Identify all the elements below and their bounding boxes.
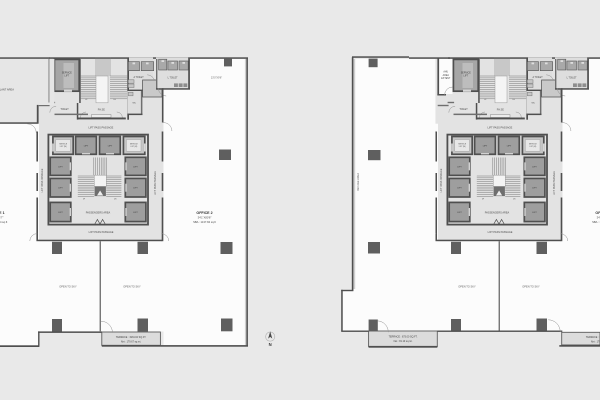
svg-text:EXTENT: EXTENT (441, 78, 451, 80)
svg-text:Net : 179.67 sq.mt.: Net : 179.67 sq.mt. (121, 340, 142, 343)
svg-text:TERRACE : 873.00 SQ.FT.: TERRACE : 873.00 SQ.FT. (389, 336, 418, 339)
svg-text:REFUGE AREA: REFUGE AREA (357, 173, 360, 191)
svg-text:AHU: AHU (443, 70, 448, 73)
svg-text:Net : 81.10 sq.mt.: Net : 81.10 sq.mt. (394, 340, 413, 343)
svg-text:TERRACE : 1934.02 SQ.FT.: TERRACE : 1934.02 SQ.FT. (116, 336, 146, 339)
svg-text:AREA: AREA (443, 74, 450, 77)
svg-text:Net : 179.67 sq.mt.: Net : 179.67 sq.mt. (591, 341, 600, 344)
svg-text:TERRACE : 1934.02 SQ.FT.: TERRACE : 1934.02 SQ.FT. (586, 336, 600, 339)
svg-text:PLANT AREA: PLANT AREA (0, 87, 14, 91)
svg-text:N: N (269, 342, 272, 347)
